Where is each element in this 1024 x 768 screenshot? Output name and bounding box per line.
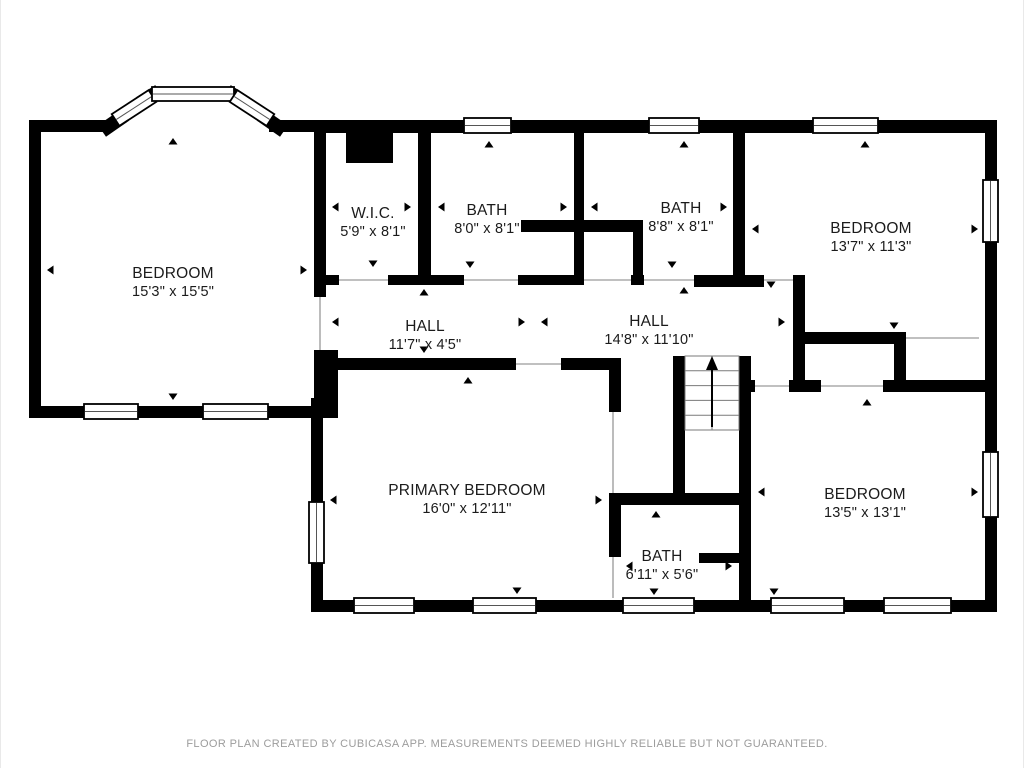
room-name: BEDROOM [824,486,906,503]
wall [789,380,821,392]
wall [346,133,393,163]
wall [311,398,323,600]
wall [733,133,745,285]
room-name: HALL [405,318,445,335]
wall [314,350,338,418]
room-dimensions: 15'3" x 15'5" [132,284,214,300]
room-name: BATH [467,202,508,219]
wall [314,133,326,297]
room-name: BEDROOM [132,265,214,282]
plan-background [1,0,1024,768]
room-dimensions: 13'7" x 11'3" [830,239,911,255]
room-dimensions: 11'7" x 4'5" [389,337,462,353]
wall [793,332,906,344]
wall [883,380,997,392]
room-name: W.I.C. [351,205,394,222]
wall [609,358,621,412]
staircase [685,356,739,430]
floor-plan-page: BEDROOM15'3" x 15'5"W.I.C.5'9" x 8'1"BAT… [0,0,1024,768]
room-dimensions: 16'0" x 12'11" [422,501,511,517]
room-dimensions: 5'9" x 8'1" [340,224,406,240]
room-dimensions: 8'0" x 8'1" [454,221,520,237]
floorplan-disclaimer: FLOOR PLAN CREATED BY CUBICASA APP. MEAS… [186,738,827,750]
bay-window-pane [152,87,234,101]
room-name: HALL [629,313,669,330]
wall [673,356,685,505]
room-dimensions: 14'8" x 11'10" [604,332,693,348]
wall [699,553,741,563]
wall [574,133,584,285]
room-name: PRIMARY BEDROOM [388,482,545,499]
wall [338,358,516,370]
wall [29,406,326,418]
floor-plan: BEDROOM15'3" x 15'5"W.I.C.5'9" x 8'1"BAT… [1,0,1024,768]
wall [29,120,41,418]
room-dimensions: 8'8" x 8'1" [648,219,714,235]
wall [609,505,621,557]
wall [314,275,339,285]
room-name: BEDROOM [830,220,912,237]
wall [418,133,431,285]
room-dimensions: 6'11" x 5'6" [626,567,699,583]
room-name: BATH [642,548,683,565]
wall [633,232,643,278]
room-dimensions: 13'5" x 13'1" [824,505,906,521]
wall [694,275,764,287]
wall [388,275,464,285]
wall [739,356,751,600]
room-name: BATH [661,200,702,217]
